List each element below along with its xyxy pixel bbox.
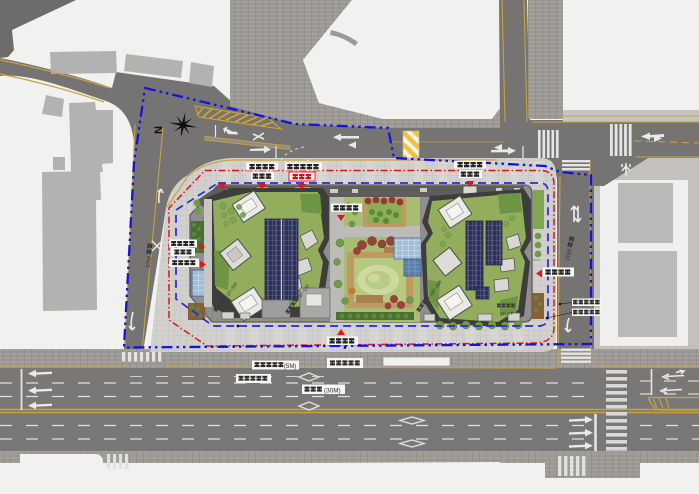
svg-text:N: N: [153, 126, 165, 134]
svg-text:1F~2F: 1F~2F: [500, 311, 514, 316]
svg-text:(30M): (30M): [324, 387, 341, 394]
svg-text:(5M): (5M): [284, 364, 296, 370]
